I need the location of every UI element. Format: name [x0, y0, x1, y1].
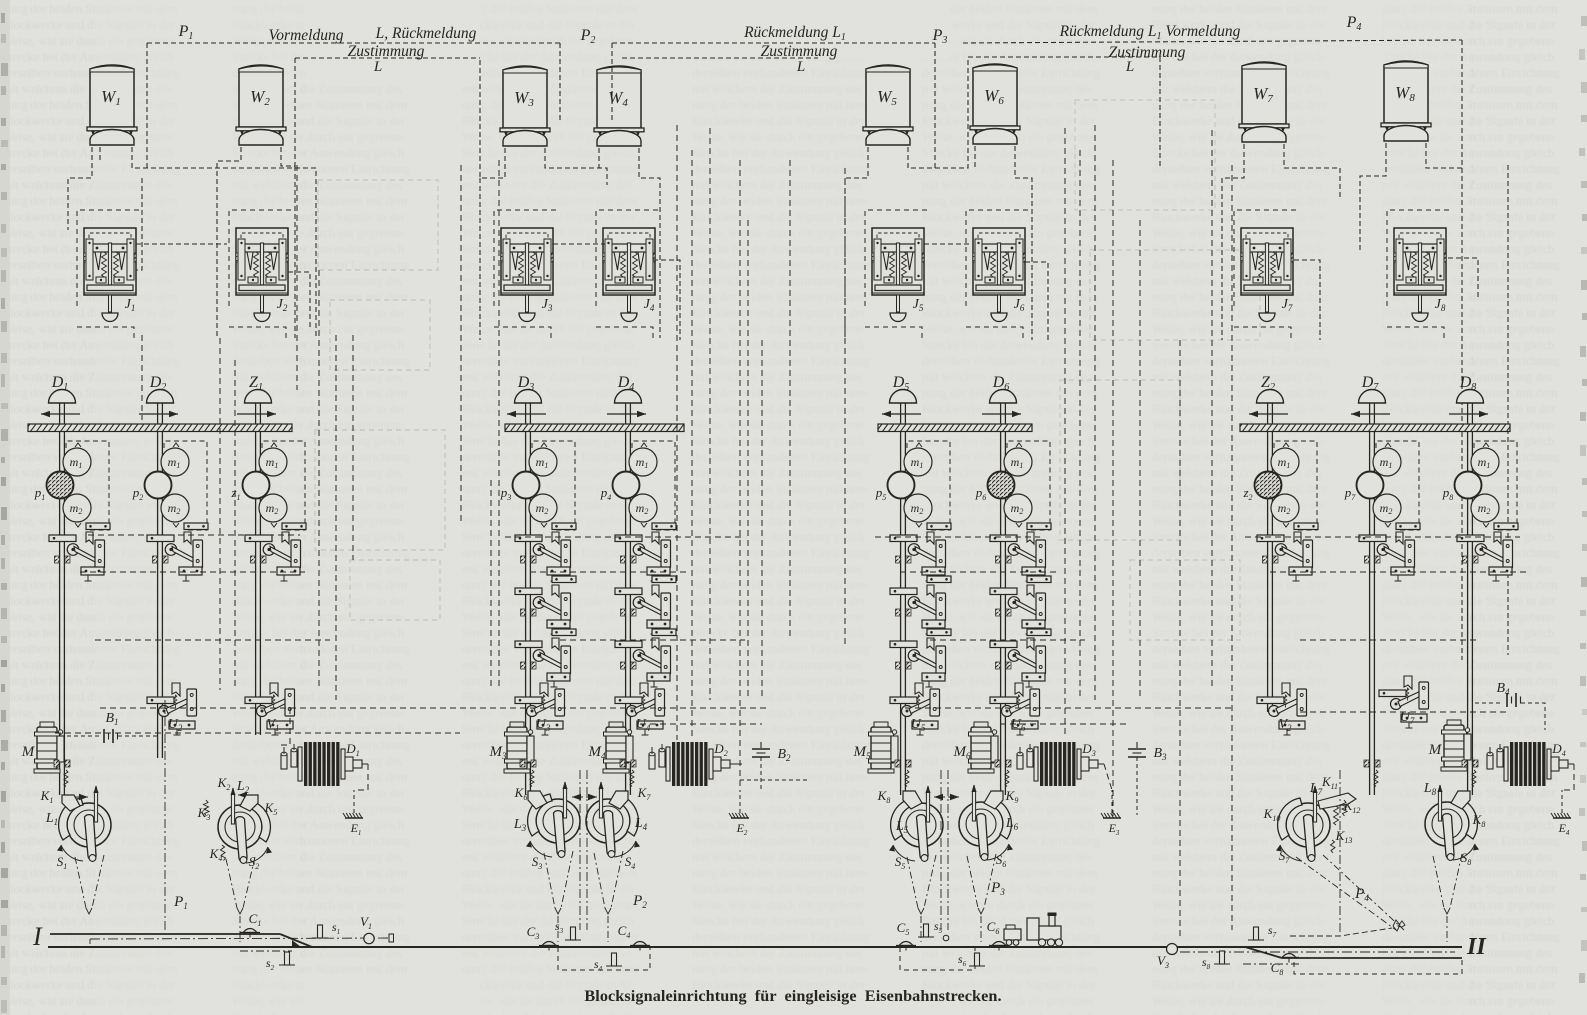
svg-text:Zustimmung: Zustimmung: [761, 43, 838, 60]
svg-text:L: L: [796, 59, 805, 75]
svg-text:L: L: [1125, 59, 1134, 75]
svg-text:Vormeldung: Vormeldung: [269, 27, 344, 44]
svg-text:L: L: [373, 59, 382, 75]
svg-text:II: II: [1466, 934, 1487, 960]
svg-text:Zustimmung: Zustimmung: [348, 43, 425, 60]
svg-text:Rückmeldung L1: Rückmeldung L1: [743, 24, 846, 43]
svg-text:Zustimmung: Zustimmung: [1109, 44, 1186, 61]
svg-text:I: I: [32, 922, 43, 951]
svg-text:M: M: [1428, 742, 1443, 758]
svg-text:M: M: [21, 744, 36, 760]
svg-text:Blocksignaleinrichtung für ein: Blocksignaleinrichtung für eingleisige E…: [584, 987, 1001, 1005]
svg-text:Rückmeldung L1 Vormeldung: Rückmeldung L1 Vormeldung: [1059, 23, 1241, 42]
svg-text:L, Rückmeldung: L, Rückmeldung: [375, 25, 477, 42]
